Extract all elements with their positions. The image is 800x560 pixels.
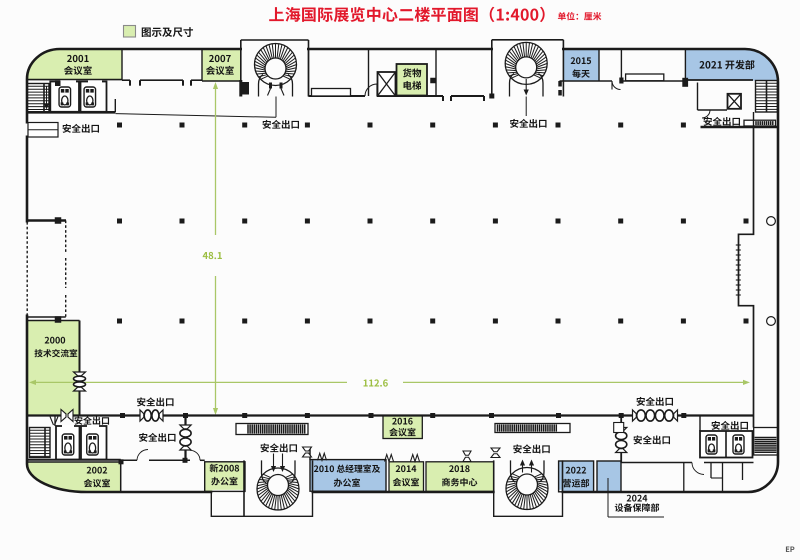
svg-text:安全出口: 安全出口 [62, 121, 100, 135]
svg-text:新2008: 新2008 [209, 462, 239, 475]
svg-text:2021 开发部: 2021 开发部 [699, 57, 755, 72]
svg-text:技术交流室: 技术交流室 [34, 347, 78, 360]
svg-text:48.1: 48.1 [203, 248, 223, 262]
svg-text:办公室: 办公室 [211, 475, 238, 488]
svg-text:安全出口: 安全出口 [633, 433, 671, 447]
svg-text:设备保障部: 设备保障部 [614, 501, 659, 514]
svg-text:2000: 2000 [44, 334, 65, 347]
svg-text:2015: 2015 [570, 54, 591, 67]
svg-text:安全出口: 安全出口 [509, 116, 547, 130]
svg-text:安全出口: 安全出口 [262, 117, 300, 131]
svg-text:2010 总经理室及: 2010 总经理室及 [314, 462, 381, 475]
svg-text:安全出口: 安全出口 [260, 441, 298, 455]
svg-text:2014: 2014 [395, 462, 417, 475]
svg-text:安全出口: 安全出口 [711, 418, 749, 432]
svg-text:安全出口: 安全出口 [138, 430, 176, 444]
svg-text:112.6: 112.6 [363, 376, 389, 390]
svg-text:营运部: 营运部 [562, 477, 589, 490]
svg-text:办公室: 办公室 [333, 476, 360, 489]
svg-text:商务中心: 商务中心 [441, 476, 477, 489]
svg-text:2022: 2022 [565, 464, 586, 477]
svg-text:图示及尺寸: 图示及尺寸 [141, 25, 194, 40]
svg-text:会议室: 会议室 [83, 477, 110, 490]
svg-text:上海国际展览中心二楼平面图（1:400）: 上海国际展览中心二楼平面图（1:400） [269, 2, 556, 26]
svg-text:会议室: 会议室 [392, 476, 419, 489]
svg-text:安全出口: 安全出口 [136, 395, 174, 409]
svg-text:2002: 2002 [86, 464, 107, 477]
svg-text:安全出口: 安全出口 [636, 394, 674, 408]
svg-text:会议室: 会议室 [206, 63, 235, 77]
svg-text:安全出口: 安全出口 [703, 114, 741, 128]
svg-text:安全出口: 安全出口 [513, 442, 551, 456]
svg-text:每天: 每天 [572, 67, 590, 80]
svg-text:单位：厘米: 单位：厘米 [558, 10, 602, 23]
svg-text:EP: EP [785, 544, 795, 555]
svg-text:会议室: 会议室 [389, 426, 416, 439]
svg-text:2018: 2018 [449, 462, 470, 475]
svg-text:会议室: 会议室 [64, 63, 93, 77]
svg-text:电梯: 电梯 [402, 78, 422, 92]
